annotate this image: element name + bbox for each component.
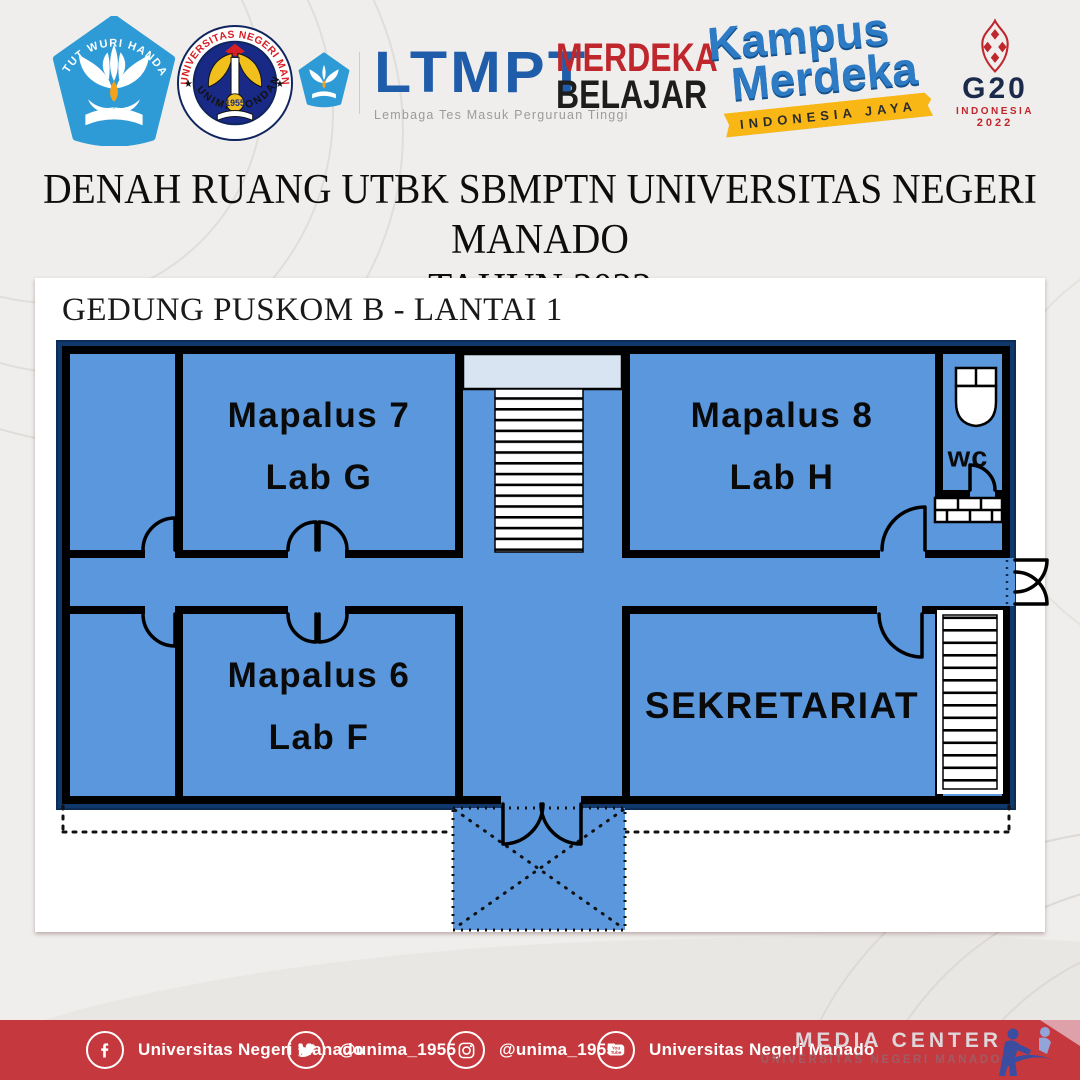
svg-text:Tube: Tube: [611, 1050, 622, 1055]
youtube-icon: YouTube: [597, 1031, 635, 1069]
header-divider: [359, 52, 360, 114]
belajar-word: BELAJAR: [556, 77, 718, 114]
plan-heading: GEDUNG PUSKOM B - LANTAI 1: [62, 292, 563, 329]
unima-logo-icon: UNIVERSITAS NEGERI MANADO UNIMA TONDANO …: [176, 24, 294, 142]
tutwuri-handayani-logo-icon: TUT WURI HANDAYANI: [40, 16, 188, 146]
floorplan-panel: GEDUNG PUSKOM B - LANTAI 1 Mapalus 7 Lab…: [35, 278, 1045, 932]
facebook-icon: [86, 1031, 124, 1069]
building-outline: Mapalus 7 Lab G Mapalus 8 Lab H Mapalus …: [62, 346, 1010, 804]
media-center-title: MEDIA CENTER: [761, 1030, 1002, 1051]
canopy-dotted-line: [63, 806, 1009, 832]
svg-text:★: ★: [184, 79, 193, 90]
merdeka-word: MERDEKA: [556, 40, 718, 77]
media-center-figures-icon: [995, 1024, 1057, 1078]
g20-year: 2022: [977, 117, 1013, 129]
svg-text:1955: 1955: [225, 98, 245, 108]
door-entrance-double: [503, 804, 581, 844]
room-label-labh: Lab H: [730, 458, 835, 498]
merdeka-belajar-logo: MERDEKA BELAJAR: [556, 40, 718, 114]
g20-ornament-icon: [976, 18, 1014, 74]
g20-logo: G20 INDONESIA 2022: [930, 18, 1060, 129]
instagram-icon: [447, 1031, 485, 1069]
g20-country: INDONESIA: [956, 106, 1034, 117]
media-center-subtitle: UNIVERSITAS NEGERI MANADO: [761, 1054, 1002, 1066]
tutwuri-handayani-small-logo-icon: [297, 52, 351, 108]
poster: TUT WURI HANDAYANI UNIVERSITAS NEGERI MA…: [0, 0, 1080, 1080]
twitter-handle: @unima_1955: [339, 1040, 456, 1060]
room-label-mapalus6: Mapalus 6: [228, 656, 411, 696]
kampus-merdeka-logo: Kampus Merdeka INDONESIA JAYA: [706, 5, 933, 137]
twitter-item: @unima_1955: [287, 1031, 456, 1069]
instagram-item: @unima_1955: [447, 1031, 616, 1069]
header: TUT WURI HANDAYANI UNIVERSITAS NEGERI MA…: [0, 0, 1080, 160]
room-label-labf: Lab F: [269, 718, 370, 758]
twitter-icon: [287, 1031, 325, 1069]
room-label-mapalus7: Mapalus 7: [228, 396, 411, 436]
svg-text:★: ★: [275, 79, 284, 90]
room-label-mapalus8: Mapalus 8: [691, 396, 874, 436]
title-line1: DENAH RUANG UTBK SBMPTN UNIVERSITAS NEGE…: [32, 166, 1047, 265]
room-label-wc: wc: [948, 442, 989, 475]
g20-name: G20: [962, 74, 1028, 104]
room-label-labg: Lab G: [266, 458, 373, 498]
room-label-sekretariat: SEKRETARIAT: [645, 685, 919, 727]
entrance-porch: [453, 808, 625, 930]
media-center-logo: MEDIA CENTER UNIVERSITAS NEGERI MANADO: [761, 1030, 1002, 1066]
door-right-exterior: [1015, 560, 1047, 604]
